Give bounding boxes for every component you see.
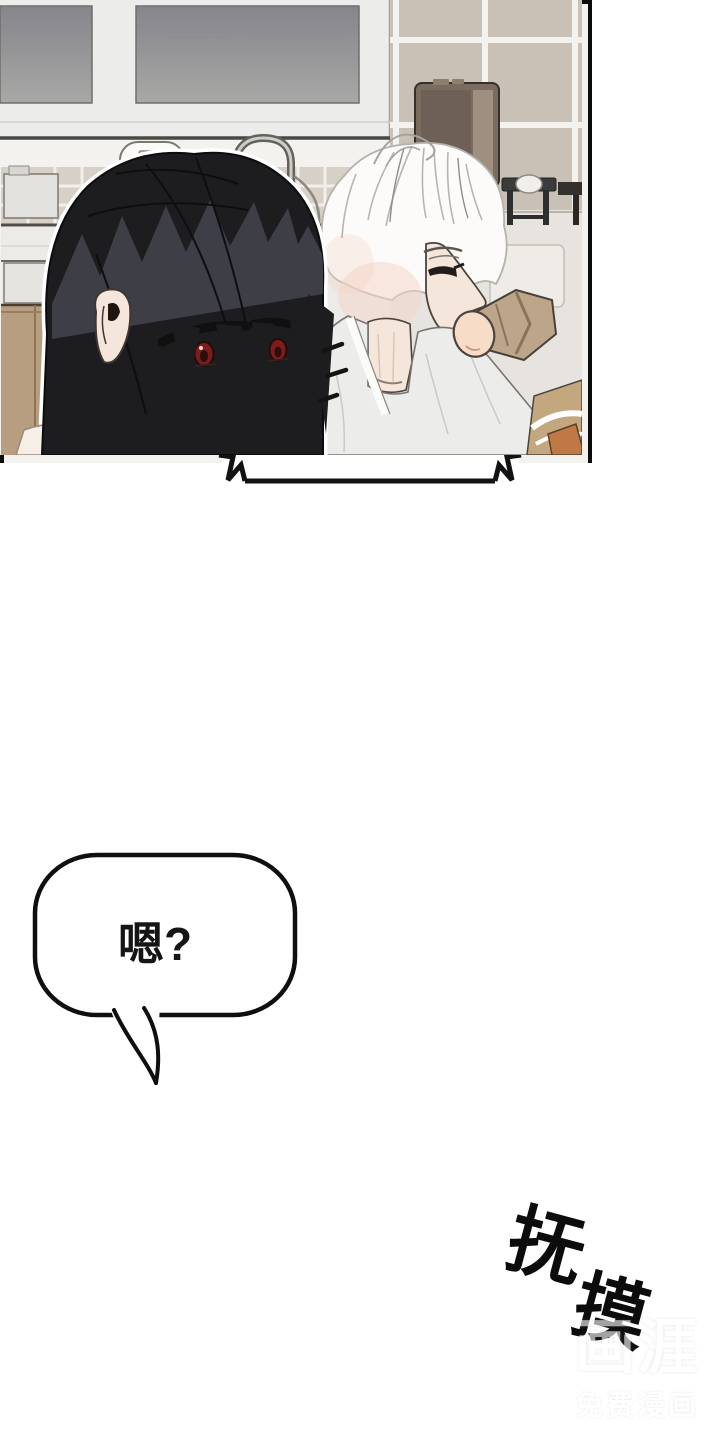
kitchen-panel	[0, 0, 592, 463]
sfx-caress-char-1: 抚	[499, 1196, 594, 1298]
pot	[516, 175, 542, 193]
comic-page: 叮 铃 ～ 是，请说!	[0, 0, 720, 1440]
kitchen-scene	[0, 0, 582, 455]
watermark-tagline: 免费漫画	[558, 1384, 716, 1424]
window-pane-left	[0, 6, 92, 103]
window	[0, 0, 390, 140]
shelf-box-1	[4, 174, 58, 218]
reply-bubble-text: 嗯?	[55, 908, 255, 974]
window-pane-right	[136, 6, 359, 103]
watermark-brand: 画涯	[558, 1316, 716, 1379]
watermark: 画涯 免费漫画	[558, 1316, 716, 1424]
